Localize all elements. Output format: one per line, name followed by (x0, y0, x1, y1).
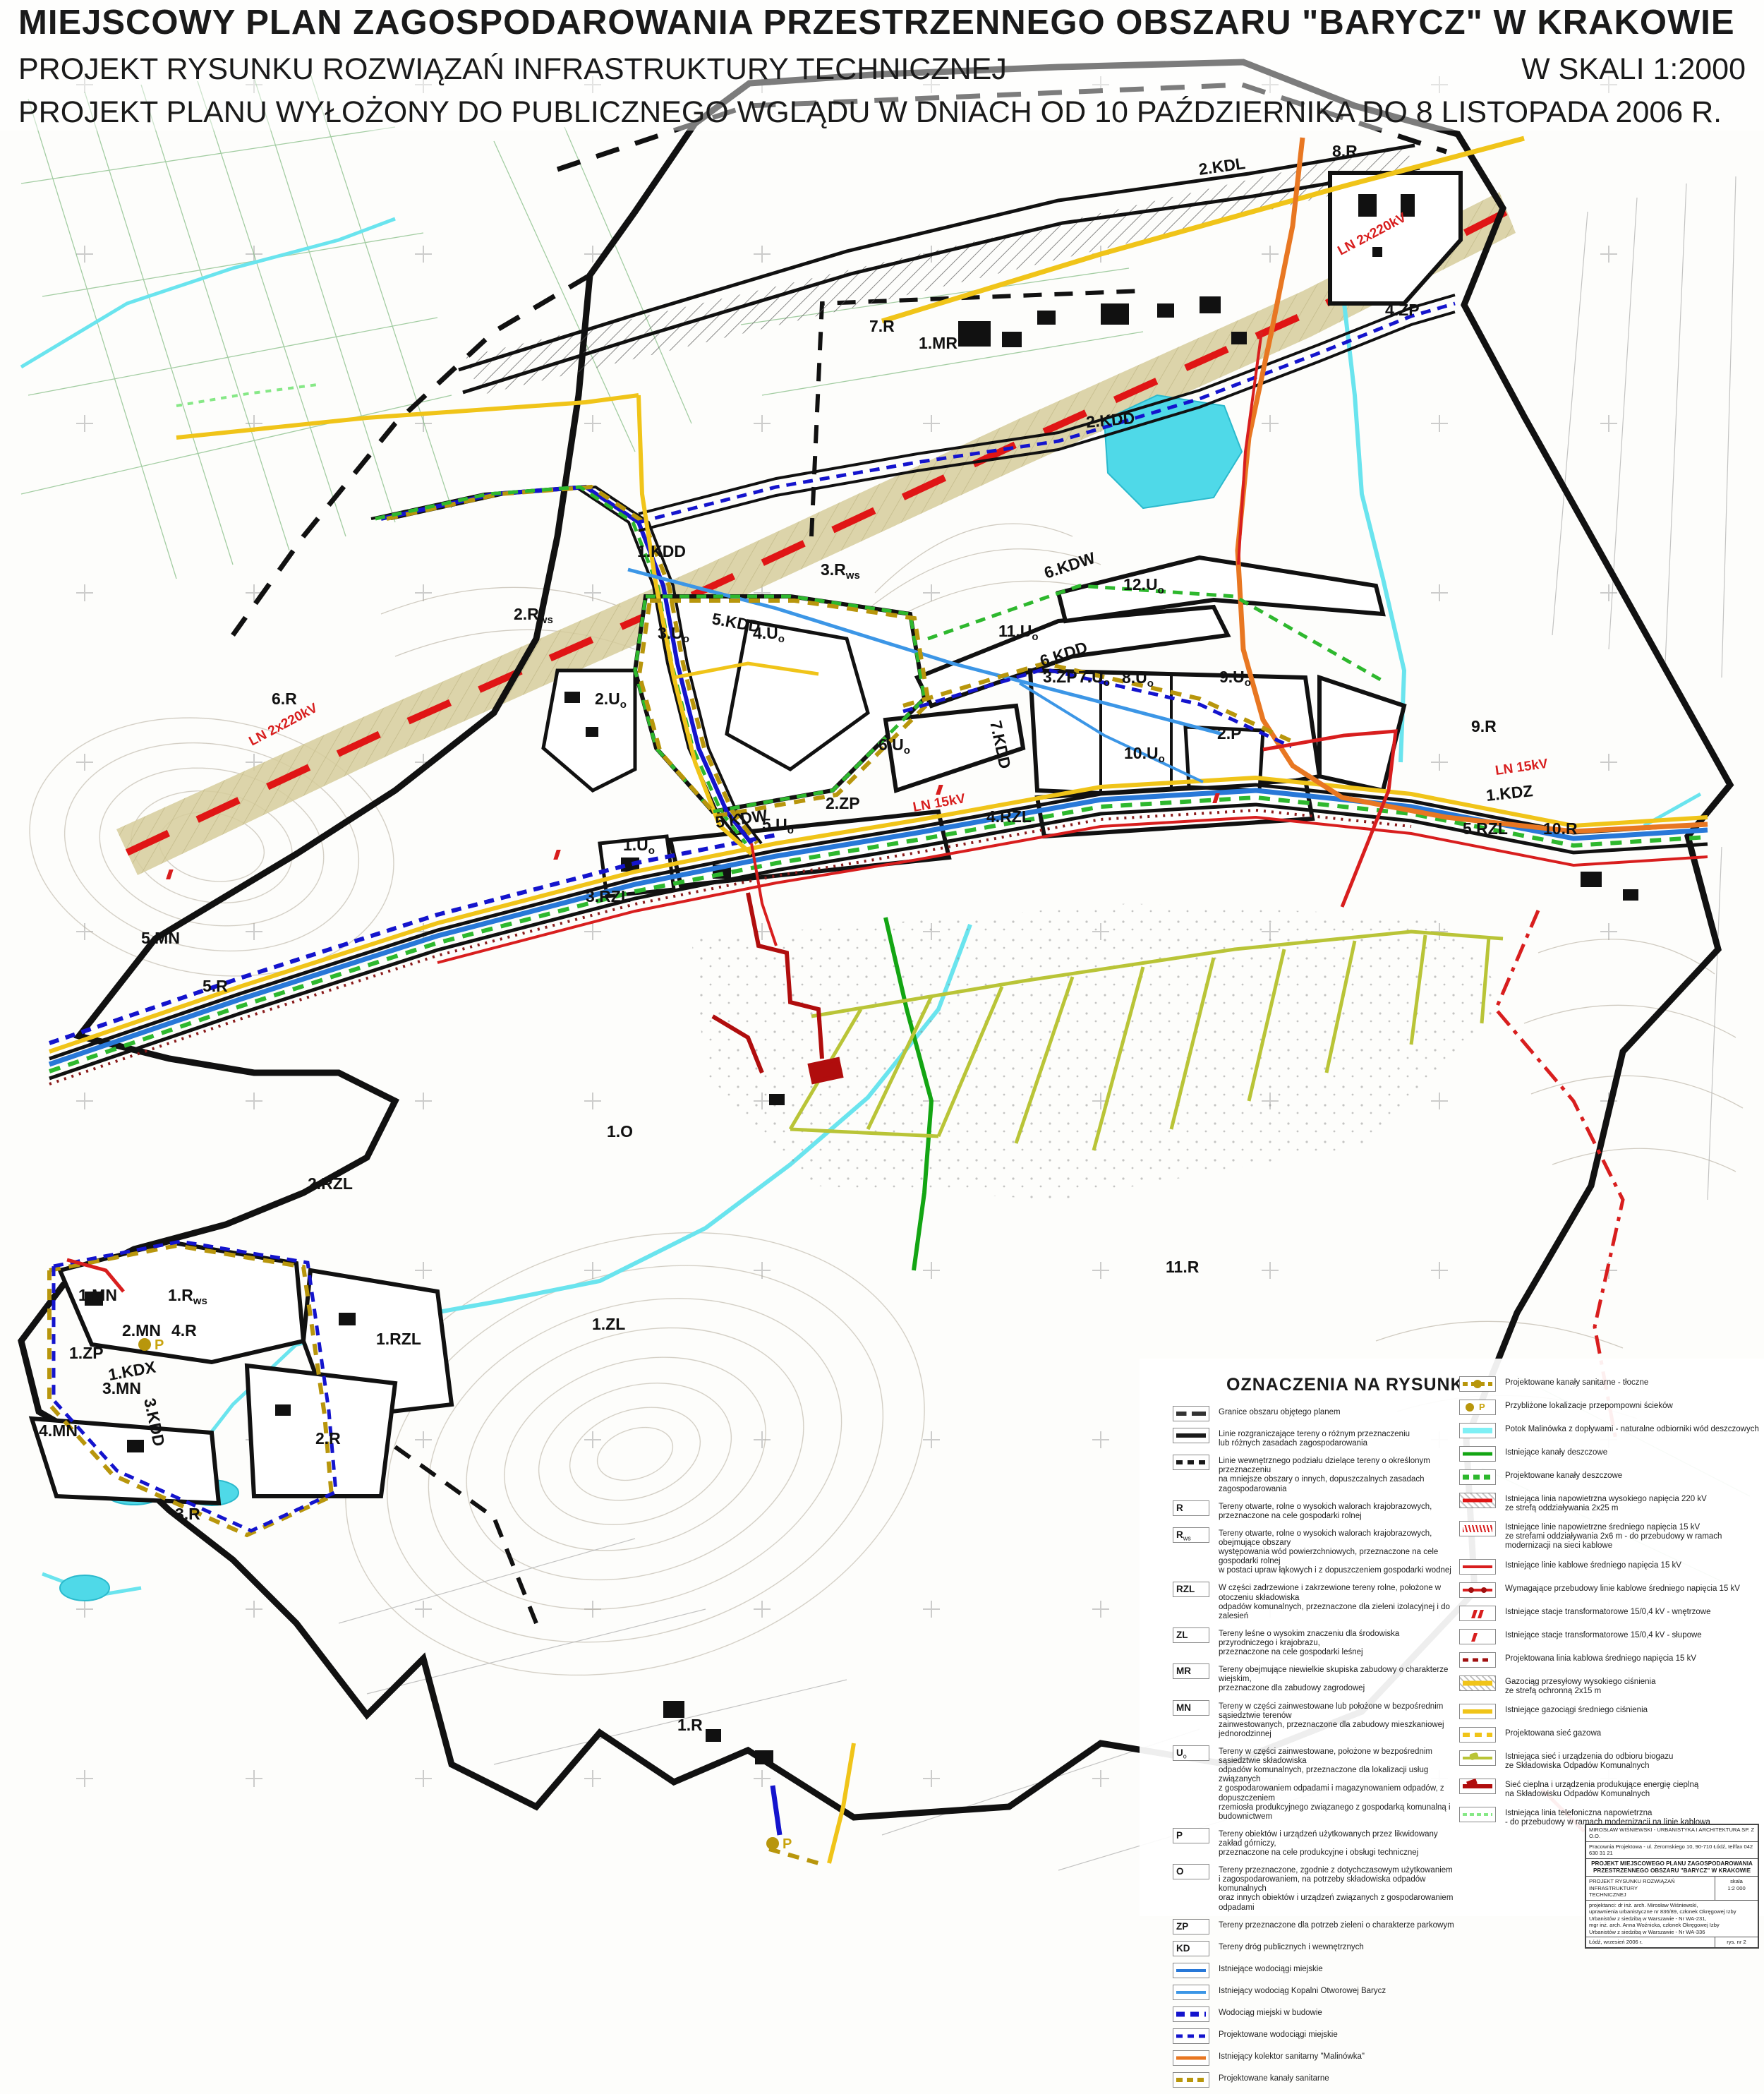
legend-symbol-line-orange (1173, 2050, 1209, 2066)
area-label: 5.MN (141, 929, 180, 947)
pump-letter: P (1479, 1400, 1485, 1414)
legend-label: Istniejące linie kablowe średniego napię… (1505, 1559, 1681, 1570)
legend-symbol-line-red (1459, 1559, 1496, 1575)
legend-label: Tereny przeznaczone dla potrzeb zieleni … (1219, 1919, 1454, 1930)
legend-symbol-code: R (1173, 1500, 1209, 1516)
legend-label: Linie rozgraniczające tereny o różnym pr… (1219, 1428, 1410, 1448)
area-label: 2.ZP (826, 794, 860, 812)
legend-item: RTereny otwarte, rolne o wysokich walora… (1173, 1500, 1456, 1521)
legend-item: Projektowane kanały deszczowe (1459, 1469, 1764, 1485)
legend-symbol-pump: P (1459, 1400, 1496, 1415)
legend-label: Projektowane kanały sanitarne (1219, 2072, 1329, 2083)
legend-symbol-code: ZP (1173, 1919, 1209, 1934)
legend-item: Istniejąca linia napowietrzna wysokiego … (1459, 1493, 1764, 1513)
legend-label: Granice obszaru objętego planem (1219, 1406, 1341, 1417)
legend-label: Istniejące linie napowietrzne średniego … (1505, 1521, 1764, 1551)
stamp-company: MIROSŁAW WIŚNIEWSKI - URBANISTYKA I ARCH… (1586, 1825, 1758, 1841)
legend-item: PPrzybliżone lokalizacje przepompowni śc… (1459, 1400, 1764, 1415)
area-label: 2.R (315, 1429, 341, 1448)
legend-item: Projektowana sieć gazowa (1459, 1727, 1764, 1743)
legend-item: Istniejące linie napowietrzne średniego … (1459, 1521, 1764, 1551)
area-label: 2.MN (122, 1321, 161, 1340)
area-label: 5.R (203, 977, 228, 995)
area-label: 5.RZL (1463, 819, 1508, 838)
area-label: 10.R (1543, 819, 1578, 838)
legend-label: Sieć cieplna i urządzenia produkujące en… (1505, 1779, 1698, 1799)
legend-item: ZPTereny przeznaczone dla potrzeb zielen… (1173, 1919, 1456, 1934)
legend-label: Istniejąca linia napowietrzna wysokiego … (1505, 1493, 1707, 1513)
legend-label: Potok Malinówka z dopływami - naturalne … (1505, 1423, 1759, 1434)
legend-symbol-code: P (1173, 1828, 1209, 1843)
legend-item: Linie rozgraniczające tereny o różnym pr… (1173, 1428, 1456, 1448)
legend-symbol-code: Rws (1173, 1527, 1209, 1543)
legend-symbol-band220 (1459, 1493, 1496, 1508)
legend-item: UoTereny w części zainwestowane, położon… (1173, 1745, 1456, 1822)
legend-symbol-line-yellowdash (1459, 1727, 1496, 1743)
legend-label: W części zadrzewione i zakrzewione teren… (1219, 1582, 1456, 1620)
stamp-designers: projektanci: dr inż. arch. Mirosław Wiśn… (1586, 1900, 1758, 1937)
area-label: 1.ZL (592, 1315, 625, 1333)
legend-symbol-code: O (1173, 1864, 1209, 1879)
legend-label: Tereny obejmujące niewielkie skupiska za… (1219, 1663, 1456, 1693)
legend-item: Projektowane kanały sanitarne (1173, 2072, 1456, 2088)
legend-symbol-line-blue (1173, 1963, 1209, 1978)
legend-symbol-line-biogas (1459, 1750, 1496, 1766)
legend-symbol-line-darkreddash (1459, 1652, 1496, 1668)
legend-left-column: Granice obszaru objętego planemLinie roz… (1173, 1406, 1456, 2094)
legend-label: Tereny dróg publicznych i wewnętrznych (1219, 1941, 1364, 1952)
legend-label: Tereny przeznaczone, zgodnie z dotychcza… (1219, 1864, 1456, 1913)
legend-item: PTereny obiektów i urządzeń użytkowanych… (1173, 1828, 1456, 1858)
area-label: 3.ZP (1043, 668, 1077, 686)
legend-item: OTereny przeznaczone, zgodnie z dotychcz… (1173, 1864, 1456, 1913)
legend-label: Linie wewnętrznego podziału dzielące ter… (1219, 1455, 1456, 1493)
stamp-sheet-number: rys. nr 2 (1715, 1937, 1758, 1946)
area-label: 4.ZP (1385, 301, 1420, 319)
legend-item: ZLTereny leśne o wysokim znaczeniu dla ś… (1173, 1627, 1456, 1657)
legend-item: Istniejący kolektor sanitarny "Malinówka… (1173, 2050, 1456, 2066)
legend-item: Linie wewnętrznego podziału dzielące ter… (1173, 1455, 1456, 1493)
legend-label: Projektowane wodociągi miejskie (1219, 2028, 1338, 2040)
area-label: 2.P (1217, 724, 1242, 742)
legend-label: Tereny w części zainwestowane lub położo… (1219, 1700, 1456, 1739)
legend-symbol-code: RZL (1173, 1582, 1209, 1597)
area-label: 1.MR (919, 334, 957, 352)
legend-item: Istniejące linie kablowe średniego napię… (1459, 1559, 1764, 1575)
stamp-project-title: PROJEKT MIEJSCOWEGO PLANU ZAGOSPODAROWAN… (1586, 1858, 1758, 1877)
legend-symbol-line-reddot (1459, 1582, 1496, 1598)
legend-item: Istniejące gazociągi średniego ciśnienia (1459, 1704, 1764, 1719)
legend-item: Granice obszaru objętego planem (1173, 1406, 1456, 1421)
area-label: 1.KDD (637, 542, 686, 560)
legend-item: MNTereny w części zainwestowane lub poło… (1173, 1700, 1456, 1739)
legend-symbol-line-blackdash (1173, 1455, 1209, 1470)
legend-label: Istniejące wodociągi miejskie (1219, 1963, 1323, 1974)
area-label: 4.MN (39, 1421, 78, 1440)
area-label: 6.R (272, 690, 297, 708)
legend-right-column: Projektowane kanały sanitarne - tłoczneP… (1459, 1376, 1764, 1835)
title-backing (0, 0, 1764, 131)
legend-item: Gazociąg przesyłowy wysokiego ciśnienia … (1459, 1675, 1764, 1696)
legend-item: Istniejące stacje transformatorowe 15/0,… (1459, 1606, 1764, 1621)
legend-label: Istniejące stacje transformatorowe 15/0,… (1505, 1606, 1710, 1617)
area-label: 9.R (1471, 717, 1497, 735)
legend-label: Tereny leśne o wysokim znaczeniu dla śro… (1219, 1627, 1456, 1657)
legend-label: Wymagające przebudowy linie kablowe śred… (1505, 1582, 1740, 1594)
legend-symbol-bandgas (1459, 1675, 1496, 1691)
legend-label: Projektowana sieć gazowa (1505, 1727, 1601, 1738)
legend-item: Istniejące wodociągi miejskie (1173, 1963, 1456, 1978)
legend-item: Projektowana linia kablowa średniego nap… (1459, 1652, 1764, 1668)
stamp-studio: Pracownia Projektowa - ul. Żeromskiego 1… (1586, 1841, 1758, 1858)
legend-symbol-code: MN (1173, 1700, 1209, 1716)
stamp-scale: skala 1:2 000 (1715, 1877, 1758, 1899)
legend-symbol-line-navydash (1173, 2028, 1209, 2044)
legend-item: KDTereny dróg publicznych i wewnętrznych (1173, 1941, 1456, 1956)
legend-label: Projektowane kanały deszczowe (1505, 1469, 1622, 1481)
legend-header: OZNACZENIA NA RYSUNKU (1226, 1375, 1478, 1395)
stamp-drawing-title: PROJEKT RYSUNKU ROZWIĄZAŃ INFRASTRUKTURY… (1586, 1877, 1715, 1899)
legend-symbol-boundary (1173, 1406, 1209, 1421)
pump-icon (766, 1837, 779, 1850)
pump-icon (138, 1338, 151, 1351)
legend-item: Sieć cieplna i urządzenia produkujące en… (1459, 1779, 1764, 1799)
legend-symbol-line-greendash (1459, 1469, 1496, 1485)
legend-label: Tereny w części zainwestowane, położone … (1219, 1745, 1456, 1822)
legend-symbol-line-tel (1459, 1807, 1496, 1822)
title-stamp: MIROSŁAW WIŚNIEWSKI - URBANISTYKA I ARCH… (1585, 1824, 1759, 1949)
area-label: 1.R (677, 1716, 703, 1734)
area-label: 8.R (1332, 142, 1358, 160)
legend-symbol-line-navythickdash (1173, 2006, 1209, 2022)
area-label: 11.R (1166, 1258, 1200, 1276)
legend-item: Wodociąg miejski w budowie (1173, 2006, 1456, 2022)
pump-label: P (155, 1337, 164, 1353)
legend-item: RwsTereny otwarte, rolne o wysokich walo… (1173, 1527, 1456, 1576)
legend-symbol-line-cyan (1459, 1423, 1496, 1438)
legend-symbol-line-lightblue (1173, 1985, 1209, 2000)
legend-item: Potok Malinówka z dopływami - naturalne … (1459, 1423, 1764, 1438)
area-label: 1.O (607, 1122, 633, 1141)
area-label: 3.R (175, 1505, 200, 1523)
legend-symbol-code: KD (1173, 1941, 1209, 1956)
area-label: 4.RZL (986, 807, 1032, 826)
legend-item: Istniejąca sieć i urządzenia do odbioru … (1459, 1750, 1764, 1771)
legend-label: Istniejące kanały deszczowe (1505, 1446, 1607, 1457)
legend-symbol-trafopole (1459, 1629, 1496, 1644)
area-label: 2.RZL (308, 1174, 353, 1193)
legend-label: Istniejący kolektor sanitarny "Malinówka… (1219, 2050, 1365, 2062)
legend-item: MRTereny obejmujące niewielkie skupiska … (1173, 1663, 1456, 1693)
legend-label: Istniejące stacje transformatorowe 15/0,… (1505, 1629, 1702, 1640)
legend-label: Istniejąca sieć i urządzenia do odbioru … (1505, 1750, 1673, 1771)
legend-symbol-line-yellow (1459, 1704, 1496, 1719)
area-label: 7.R (869, 317, 895, 335)
legend-label: Tereny otwarte, rolne o wysokich walorac… (1219, 1500, 1432, 1521)
legend-symbol-code: ZL (1173, 1627, 1209, 1643)
legend-label: Tereny obiektów i urządzeń użytkowanych … (1219, 1828, 1456, 1858)
legend-label: Istniejące gazociągi średniego ciśnienia (1505, 1704, 1648, 1715)
plan-sheet: { "title": { "line1": "MIEJSCOWY PLAN ZA… (0, 0, 1764, 1916)
legend-symbol-line-black (1173, 1428, 1209, 1443)
legend-label: Wodociąg miejski w budowie (1219, 2006, 1322, 2018)
legend-label: Tereny otwarte, rolne o wysokich walorac… (1219, 1527, 1456, 1576)
legend-symbol-line-heat (1459, 1779, 1496, 1794)
legend-symbol-band15 (1459, 1521, 1496, 1536)
legend-item: Istniejące stacje transformatorowe 15/0,… (1459, 1629, 1764, 1644)
legend-item: RZLW części zadrzewione i zakrzewione te… (1173, 1582, 1456, 1620)
area-label: 1.MN (78, 1286, 117, 1304)
pump-label: P (783, 1836, 792, 1852)
legend-symbol-trafoin (1459, 1606, 1496, 1621)
legend-symbol-line-golddash (1173, 2072, 1209, 2088)
area-label: 3.RZL (586, 887, 631, 905)
legend-item: Istniejące kanały deszczowe (1459, 1446, 1764, 1462)
legend-label: Gazociąg przesyłowy wysokiego ciśnienia … (1505, 1675, 1656, 1696)
legend-symbol-code: Uo (1173, 1745, 1209, 1761)
legend-label: Przybliżone lokalizacje przepompowni ści… (1505, 1400, 1673, 1411)
area-label: 1.RZL (376, 1330, 421, 1348)
legend-label: Projektowane kanały sanitarne - tłoczne (1505, 1376, 1648, 1388)
legend-item: Projektowane kanały sanitarne - tłoczne (1459, 1376, 1764, 1392)
legend-item: Istniejący wodociąg Kopalni Otworowej Ba… (1173, 1985, 1456, 2000)
area-label: 3.MN (102, 1379, 141, 1397)
legend-symbol-line-golddashdot (1459, 1376, 1496, 1392)
legend-symbol-line-green (1459, 1446, 1496, 1462)
legend-item: Projektowane wodociągi miejskie (1173, 2028, 1456, 2044)
area-label: 1.ZP (69, 1344, 104, 1362)
stamp-place-date: Łódź, wrzesień 2006 r. (1586, 1937, 1715, 1946)
area-label: 4.R (171, 1321, 197, 1340)
legend-label: Istniejący wodociąg Kopalni Otworowej Ba… (1219, 1985, 1386, 1996)
legend-label: Projektowana linia kablowa średniego nap… (1505, 1652, 1696, 1663)
legend-symbol-code: MR (1173, 1663, 1209, 1679)
legend-item: Wymagające przebudowy linie kablowe śred… (1459, 1582, 1764, 1598)
